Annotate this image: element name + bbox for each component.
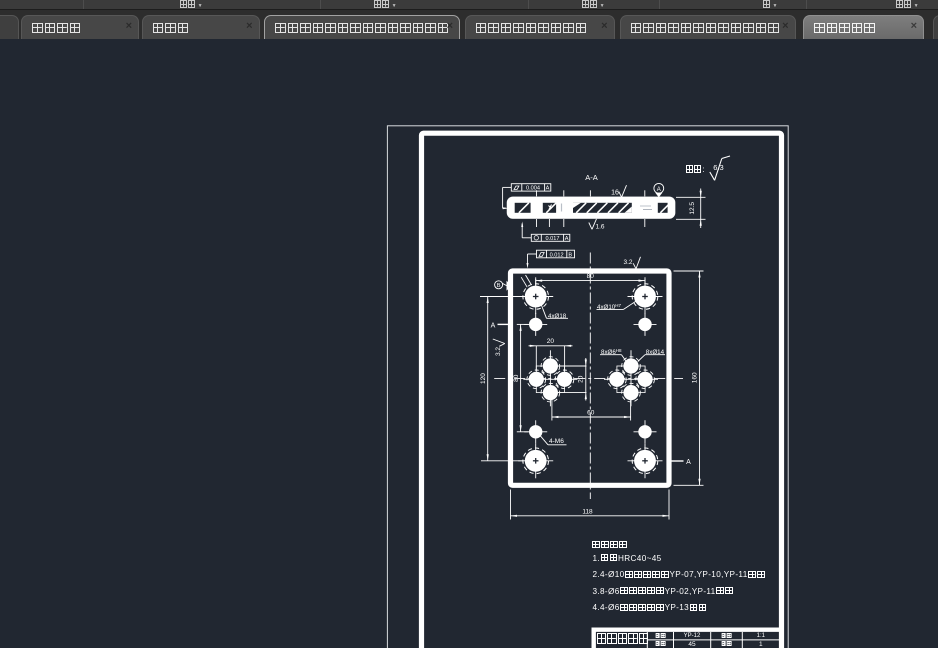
svg-text:B: B [568,252,572,258]
svg-text:0.017: 0.017 [546,236,560,242]
svg-text:4xØ18: 4xØ18 [548,313,567,320]
svg-text:0.012: 0.012 [550,252,564,258]
svg-text:20: 20 [547,338,555,345]
svg-text:80: 80 [513,374,520,382]
svg-text:B: B [497,283,501,289]
svg-text:118: 118 [582,509,593,516]
svg-text:A: A [546,186,550,192]
svg-text:A: A [657,187,661,193]
svg-text:A: A [565,236,569,242]
svg-text:8xØ14: 8xØ14 [646,349,665,356]
svg-text:3.2: 3.2 [495,347,502,356]
svg-text:80: 80 [587,273,595,280]
svg-text:A-A: A-A [585,173,598,182]
svg-text:20: 20 [578,375,585,383]
svg-text:60: 60 [587,410,595,417]
svg-text:16: 16 [611,190,619,197]
svg-text:160: 160 [691,372,698,383]
svg-text:A: A [491,322,496,329]
svg-text:4-M6: 4-M6 [549,438,564,445]
svg-text:A: A [686,459,691,466]
svg-text:120: 120 [480,373,487,384]
svg-text:12.5: 12.5 [689,202,696,215]
svg-text:3.2: 3.2 [623,259,632,266]
svg-text:0.004: 0.004 [526,186,540,192]
svg-text:1.6: 1.6 [595,224,604,231]
